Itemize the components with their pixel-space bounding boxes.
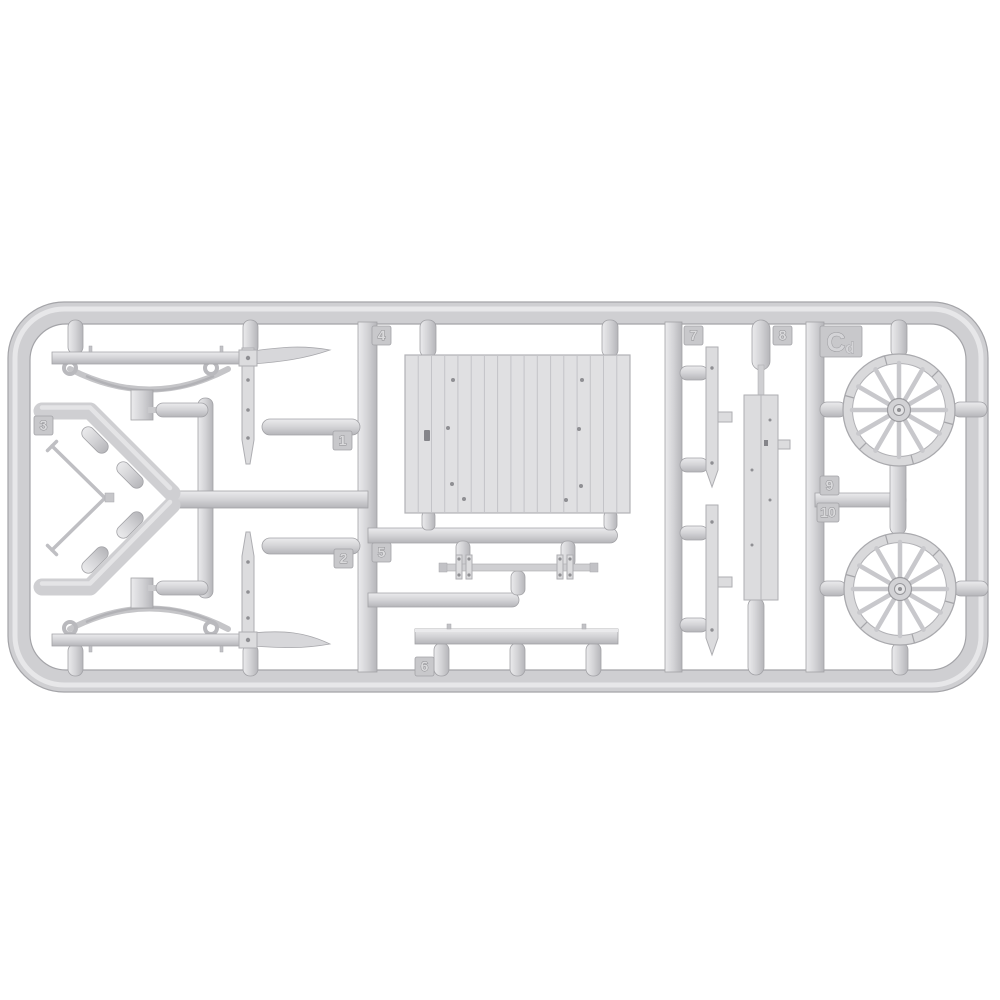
planked-side-beam-part8 <box>744 395 790 600</box>
panel-rivet <box>462 497 466 501</box>
runner-horizontal-mid <box>368 528 618 543</box>
part-tag-10: 10 <box>817 503 839 522</box>
tag-label: 4 <box>378 327 386 343</box>
stake-rivet <box>710 366 713 369</box>
stake-rivet <box>710 628 713 631</box>
side-beam-rivet <box>751 469 754 472</box>
panel-rivet <box>450 482 454 486</box>
stake-bolt-bottom <box>246 638 250 642</box>
gate-wheel2-right <box>954 581 988 596</box>
part-tag-4: 4 <box>372 326 391 345</box>
gate-stake7-c <box>680 526 708 540</box>
part-tag-6: 6 <box>415 657 434 676</box>
tie-rod-end-right <box>590 563 598 572</box>
stake-rivet <box>246 408 250 412</box>
side-beam-tab <box>778 440 790 449</box>
gate-wheel2-left <box>820 581 846 596</box>
sprue-photo: 1 2 3 4 5 6 7 8 <box>0 0 1000 1000</box>
beam-top-face <box>415 629 618 632</box>
panel-rivet <box>446 426 450 430</box>
tag-label: 1 <box>339 432 347 448</box>
stake-rivet <box>710 520 713 523</box>
side-rail-beam-part6 <box>415 624 618 644</box>
axle-pin-a-bottom <box>89 646 92 652</box>
tag-label: 7 <box>690 327 698 343</box>
clamp-bolt <box>467 573 470 576</box>
side-beam-rivet <box>769 499 772 502</box>
gate-stake7-b <box>680 458 708 472</box>
panel-rivet <box>451 378 455 382</box>
tag-label: 3 <box>40 417 48 433</box>
axle-pin-b-bottom <box>220 646 223 652</box>
runner-vertical-middle <box>665 322 682 672</box>
tag-label: 8 <box>779 327 787 343</box>
tag-label: 2 <box>340 550 348 566</box>
part-tag-9: 9 <box>820 476 839 495</box>
spoked-wheel-part10 <box>844 533 956 645</box>
stake-rivet <box>246 560 250 564</box>
panel-rivet <box>580 378 584 382</box>
stake-rivet <box>246 616 250 620</box>
panel-rivet <box>564 498 568 502</box>
stake-strip-bottom-left <box>242 532 254 646</box>
gate-part8-bottom <box>748 598 764 675</box>
axle-pin-a-top <box>89 346 92 352</box>
clamp-bolt <box>568 557 571 560</box>
axle-pin-b-top <box>220 346 223 352</box>
beam-pin <box>582 624 586 629</box>
clamp-bolt <box>457 557 460 560</box>
stake-strips-right <box>706 347 732 655</box>
tag-label: 6 <box>421 658 429 674</box>
thin-rod-vertex-peg <box>105 493 114 502</box>
gate-wheel1-top <box>891 320 907 357</box>
plank-floor-panel-part4 <box>405 355 630 513</box>
runner-v-junction-bar <box>168 491 368 508</box>
material-code-tag: C d <box>820 326 862 357</box>
draft-pole-v-part <box>42 408 172 588</box>
material-code-letter-c: C <box>827 327 846 357</box>
panel-slot <box>424 430 430 441</box>
stake-tab-lower <box>718 577 732 587</box>
stake-rivet <box>246 378 250 382</box>
gate-rod-center <box>511 571 525 595</box>
axle-bar-bottom <box>52 634 252 646</box>
gate-stake7-a <box>680 366 708 380</box>
tag-label: 10 <box>820 504 836 520</box>
material-code-letter-d: d <box>845 340 854 357</box>
gate-stake7-d <box>680 618 708 632</box>
clamp-bolt <box>568 573 571 576</box>
side-beam-rivet <box>769 419 772 422</box>
part-tag-2: 2 <box>334 549 353 568</box>
gate-bottom-left-b <box>243 644 258 676</box>
thin-chevron-rod <box>52 446 105 550</box>
gate-part8-neck <box>758 365 764 397</box>
gate-panel-bottom-a <box>422 511 435 530</box>
stake-rivet <box>246 436 250 440</box>
gate-panel-top-b <box>602 320 618 357</box>
panel-rivet <box>579 484 583 488</box>
part-tag-8: 8 <box>773 326 792 345</box>
gate-wheel1-right <box>953 402 987 417</box>
panel-body <box>405 355 630 513</box>
gate-bottom-left-a <box>68 644 83 676</box>
beam-pin <box>447 624 451 629</box>
side-beam-rivet <box>751 544 754 547</box>
axle-blade-bottom <box>252 632 330 648</box>
gate-wheel-connector <box>890 459 906 535</box>
panel-rivet <box>577 427 581 431</box>
gate-beam-a <box>434 643 449 676</box>
gate-wheel1-left <box>820 402 846 417</box>
tie-rod-end-left <box>439 563 447 572</box>
clamp-bolt <box>558 573 561 576</box>
tag-label: 5 <box>378 544 386 560</box>
part-tag-3: 3 <box>34 416 53 435</box>
part-tag-5: 5 <box>372 543 391 562</box>
spoked-wheel-part9 <box>843 354 955 466</box>
stake-bolt-top <box>246 356 250 360</box>
clamp-rod-bottom <box>156 581 208 595</box>
clamp-bolt <box>558 557 561 560</box>
stake-rivet <box>246 590 250 594</box>
spring-clamp-top <box>131 390 153 420</box>
gate-top-left-a <box>68 320 83 354</box>
part-tag-7: 7 <box>684 326 703 345</box>
part-tag-1: 1 <box>333 431 352 450</box>
axle-bar-top <box>52 352 252 364</box>
tag-label: 9 <box>826 477 834 493</box>
gate-panel-top-a <box>420 320 436 357</box>
stake-strip-lower-part7 <box>706 505 718 655</box>
spring-clamp-bottom <box>131 578 153 608</box>
stake-tab-upper <box>718 412 732 422</box>
clamp-rod-top <box>156 403 208 417</box>
gate-part8-top <box>752 320 770 370</box>
spring-hook-right-bottom <box>205 622 217 634</box>
gate-beam-c <box>586 643 601 676</box>
gate-wheel2-bottom <box>892 643 908 675</box>
runner-horizontal-low <box>368 593 519 607</box>
gate-panel-bottom-b <box>604 511 617 530</box>
axle-blade-top <box>252 347 330 364</box>
stake-rivet <box>710 461 713 464</box>
gate-beam-b <box>510 643 525 676</box>
clamp-bolt <box>457 573 460 576</box>
side-beam-slot <box>764 440 768 446</box>
clamp-bolt <box>467 557 470 560</box>
